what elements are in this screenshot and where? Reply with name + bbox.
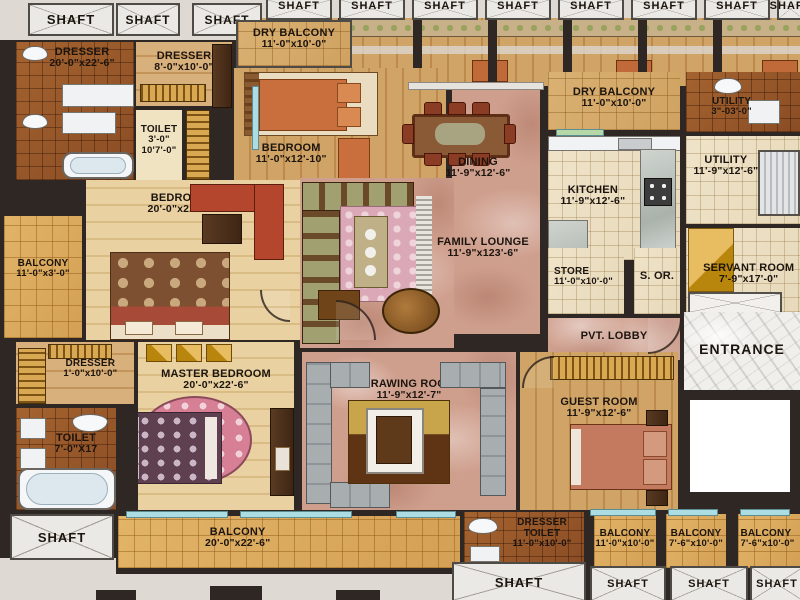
wardrobe-shape xyxy=(550,356,674,380)
room-balcony-b2: BALCONY 7'-6"x10'-0" xyxy=(666,514,726,568)
wardrobe-shape xyxy=(48,344,112,359)
wc-shape xyxy=(714,78,742,94)
room-label: STORE 11'-0"x10'-0" xyxy=(548,266,624,288)
room-label: BALCONY 20'-0"x22'-6" xyxy=(152,526,323,550)
bed-shape xyxy=(570,424,672,490)
room-label: DINING 11'-9"x12'-6" xyxy=(416,156,540,180)
room-utility-right: UTILITY 11'-9"x12'-6" xyxy=(686,136,800,224)
sofa-shape xyxy=(480,388,506,496)
room-dims: 7'-0"X17 xyxy=(36,444,116,456)
room-label: DRESSER 1'-0"x10'-0" xyxy=(47,358,134,380)
room-dims: 11'-0"x10'-0" xyxy=(554,277,624,288)
room-dry-balcony-right: DRY BALCONY 11'-0"x10'-0" xyxy=(548,72,680,130)
shaft-box: SHAFT xyxy=(10,514,114,560)
room-label: SERVANT ROOM 7'-9"x17'-0" xyxy=(697,262,800,286)
shaft-box: SHAFT xyxy=(704,0,770,20)
room-dresser-toilet-block: DRESSER 20'-0"x22'-6" xyxy=(16,42,134,180)
room-bedroom-left: BEDROOM 20'-0"x22'-6" xyxy=(86,180,300,340)
washbasin-counter-shape xyxy=(62,84,134,107)
wardrobe-shape xyxy=(18,348,46,404)
room-label: TOILET 7'-0"X17 xyxy=(36,432,116,456)
window xyxy=(126,511,228,518)
room-label: KITCHEN 11'-9"x12'-6" xyxy=(551,184,635,208)
room-label: FAMILY LOUNGE 11'-9"x123'-6" xyxy=(418,236,548,260)
shaft-label: SHAFT xyxy=(278,0,320,12)
wardrobe-shape xyxy=(186,110,210,180)
window xyxy=(668,509,718,516)
room-dry-balcony-left: DRY BALCONY 11'-0"x10'-0" xyxy=(236,20,352,68)
room-label: MASTER BEDROOM 20'-0"x22'-6" xyxy=(138,368,294,392)
lift-room xyxy=(690,400,790,492)
dining-chair xyxy=(504,124,516,144)
room-dims: 11'-9"x12'-6" xyxy=(686,166,766,178)
room-utility-small: UTILITY 3"-03'-0" xyxy=(686,72,800,132)
chair-shape xyxy=(176,344,202,362)
shaft-box: SHAFT xyxy=(116,3,180,36)
room-store: STORE 11'-0"x10'-0" xyxy=(548,248,624,314)
shaft-label: SHAFT xyxy=(756,578,798,590)
window xyxy=(590,509,656,516)
window-sill xyxy=(408,82,544,90)
table-dot xyxy=(365,229,376,240)
room-dims: 7'-9"x17'-0" xyxy=(697,274,800,286)
room-balcony-b3: BALCONY 7'-6"x10'-0" xyxy=(738,514,800,568)
room-label: BALCONY 11'-0"x10'-0" xyxy=(594,528,656,550)
sofa-shape xyxy=(330,482,390,508)
room-dims: 11'-0"x10'-0" xyxy=(500,539,584,550)
room-master-bedroom: MASTER BEDROOM 20'-0"x22'-6" xyxy=(138,342,294,510)
room-dims: 7'-6"x10'-0" xyxy=(666,539,726,550)
bed-pillow xyxy=(337,107,361,127)
room-toilet-bottom-left: TOILET 7'-0"X17 xyxy=(16,408,116,510)
shaft-label: SHAFT xyxy=(424,0,466,12)
table-dot xyxy=(365,247,376,258)
room-label: DRY BALCONY 11'-0"x10'-0" xyxy=(548,86,680,110)
room-dims: 11'-0"x10'-0" xyxy=(548,98,680,110)
room-dims: 11'-9"x123'-6" xyxy=(418,248,548,260)
shaft-box: SHAFT xyxy=(590,566,666,600)
room-name: S. OR. xyxy=(634,270,680,282)
room-label: BALCONY 7'-6"x10'-0" xyxy=(740,528,800,550)
bathtub-shape xyxy=(62,152,134,179)
table-top xyxy=(376,416,412,464)
room-toilet-small: TOILET 3'-0" 10'7'-0" xyxy=(136,110,182,180)
ottoman-shape xyxy=(382,288,440,334)
dining-chair xyxy=(472,102,490,115)
shaft-label: SHAFT xyxy=(126,13,171,27)
bathtub-shape xyxy=(18,468,116,510)
shaft-label: SHAFT xyxy=(643,0,685,12)
shaft-box: SHAFT xyxy=(670,566,748,600)
outside-band-bottom-mid xyxy=(116,574,456,600)
room-dims: 11'-0"x10'-0" xyxy=(238,39,350,51)
room-dims: 1'-0"x10'-0" xyxy=(47,369,134,380)
shaft-box: SHAFT xyxy=(558,0,624,20)
bed-shape xyxy=(244,72,378,136)
window xyxy=(556,129,604,136)
coffee-table-shape xyxy=(366,408,424,474)
window xyxy=(240,511,352,518)
wc-shape xyxy=(72,414,108,432)
sofa-shape xyxy=(190,184,256,212)
room-dims: 20'-0"x22'-6" xyxy=(152,538,323,550)
shaft-box: SHAFT xyxy=(412,0,478,20)
washbasin-counter-shape xyxy=(62,112,116,134)
side-table-shape xyxy=(646,490,668,506)
room-label: UTILITY 3"-03'-0" xyxy=(686,96,777,118)
bed-blanket xyxy=(259,79,347,131)
wall-divider xyxy=(488,18,497,86)
room-entrance: ENTRANCE xyxy=(684,312,800,394)
wardrobe-item xyxy=(275,447,290,471)
room-drawing-room: DRAWING ROOM 11'-9"x12'-7" xyxy=(302,352,516,510)
room-label: TOILET 3'-0" 10'7'-0" xyxy=(136,124,182,156)
sofa-shape xyxy=(302,210,340,344)
shaft-label: SHAFT xyxy=(770,0,800,12)
room-dims2: 10'7'-0" xyxy=(136,146,182,157)
coffee-table-shape xyxy=(354,216,388,288)
wardrobe-shape xyxy=(270,408,294,496)
room-kitchen: KITCHEN 11'-9"x12'-6" xyxy=(548,136,680,260)
room-label: BALCONY 11'-0"x3'-0" xyxy=(4,258,82,280)
room-balcony-left: BALCONY 11'-0"x3'-0" xyxy=(4,216,82,338)
hatch-box xyxy=(688,292,782,314)
dining-table-shape xyxy=(412,114,510,158)
room-label: DRY BALCONY 11'-0"x10'-0" xyxy=(238,27,350,51)
room-dims: 3"-03'-0" xyxy=(686,107,777,118)
washbasin-shape xyxy=(470,546,500,562)
dining-chair xyxy=(424,102,442,115)
room-label: BALCONY 7'-6"x10'-0" xyxy=(666,528,726,550)
shaft-box: SHAFT xyxy=(339,0,405,20)
floor-plan: SHAFT SHAFT SHAFT SHAFT SHAFT SHAFT SHAF… xyxy=(0,0,800,600)
shaft-label: SHAFT xyxy=(570,0,612,12)
sofa-shape xyxy=(330,362,370,388)
shaft-box: SHAFT xyxy=(750,566,800,600)
shaft-label: SHAFT xyxy=(497,0,539,12)
sofa-shape xyxy=(306,362,332,504)
room-dims: 11'-0"x3'-0" xyxy=(4,269,82,280)
shaft-label: SHAFT xyxy=(38,530,86,545)
room-dims: 11'-0"x10'-0" xyxy=(594,539,656,550)
side-table-shape xyxy=(646,410,668,426)
wardrobe-shape xyxy=(212,44,232,108)
bed-pillow xyxy=(337,83,361,103)
shaft-box: SHAFT xyxy=(28,3,114,36)
shaft-label: SHAFT xyxy=(351,0,393,12)
room-label: ENTRANCE xyxy=(684,342,800,358)
bed-sheet xyxy=(571,429,581,485)
window xyxy=(740,509,790,516)
chair-shape xyxy=(146,344,172,362)
chair-shape xyxy=(206,344,232,362)
wall-stub xyxy=(336,590,380,600)
sofa-shape xyxy=(254,184,284,260)
shaft-box: SHAFT xyxy=(777,0,800,20)
room-label: DRESSER TOILET 11'-0"x10'-0" xyxy=(500,517,584,550)
room-dims: 20'-0"x22'-6" xyxy=(138,380,294,392)
shaft-label: SHAFT xyxy=(47,12,95,27)
wardrobe-shape xyxy=(140,84,206,102)
shaft-label: SHAFT xyxy=(688,578,730,590)
room-dims: 11'-0"x12'-10" xyxy=(238,154,344,166)
bed-shape xyxy=(110,252,230,340)
shaft-label: SHAFT xyxy=(716,0,758,12)
room-balcony-b1: BALCONY 11'-0"x10'-0" xyxy=(594,514,656,568)
room-name: ENTRANCE xyxy=(684,342,800,358)
bed-pillow xyxy=(643,431,667,457)
room-dims: 20'-0"x22'-6" xyxy=(30,58,134,70)
table-dot xyxy=(365,265,376,276)
shaft-box: SHAFT xyxy=(452,562,586,600)
wall-stub xyxy=(210,586,262,600)
dining-chair xyxy=(448,102,466,115)
bed-pillow xyxy=(643,459,667,485)
bed-pillow xyxy=(138,417,139,479)
shaft-label: SHAFT xyxy=(607,578,649,590)
room-dims: 7'-6"x10'-0" xyxy=(740,539,800,550)
table-runner xyxy=(435,123,485,145)
bed-pillow xyxy=(175,321,203,335)
side-table-shape xyxy=(202,214,242,244)
wc-shape xyxy=(22,46,48,61)
room-dresser-left: DRESSER 1'-0"x10'-0" xyxy=(16,342,134,404)
room-balcony-bottom: BALCONY 20'-0"x22'-6" xyxy=(118,516,460,568)
shaft-box: SHAFT xyxy=(266,0,332,20)
bed-shape xyxy=(138,412,222,484)
stove-shape xyxy=(644,178,672,206)
wc-shape xyxy=(22,114,48,129)
bed-sheet xyxy=(205,417,217,479)
room-dims: 11'-9"x12'-6" xyxy=(551,196,635,208)
bed-pillow xyxy=(125,321,153,335)
shaft-label: SHAFT xyxy=(495,575,543,590)
room-s-or: S. OR. xyxy=(634,248,680,314)
wall-stub xyxy=(96,590,136,600)
room-name: DRESSER xyxy=(500,517,584,528)
dining-chair xyxy=(402,124,414,144)
sofa-shape xyxy=(440,362,506,388)
room-label: S. OR. xyxy=(634,270,680,282)
room-dims: 11'-9"x12'-6" xyxy=(416,168,540,180)
room-label: UTILITY 11'-9"x12'-6" xyxy=(686,154,766,178)
shaft-box: SHAFT xyxy=(485,0,551,20)
window xyxy=(396,511,456,518)
shaft-box: SHAFT xyxy=(631,0,697,20)
wc-shape xyxy=(468,518,498,534)
window xyxy=(252,86,259,150)
